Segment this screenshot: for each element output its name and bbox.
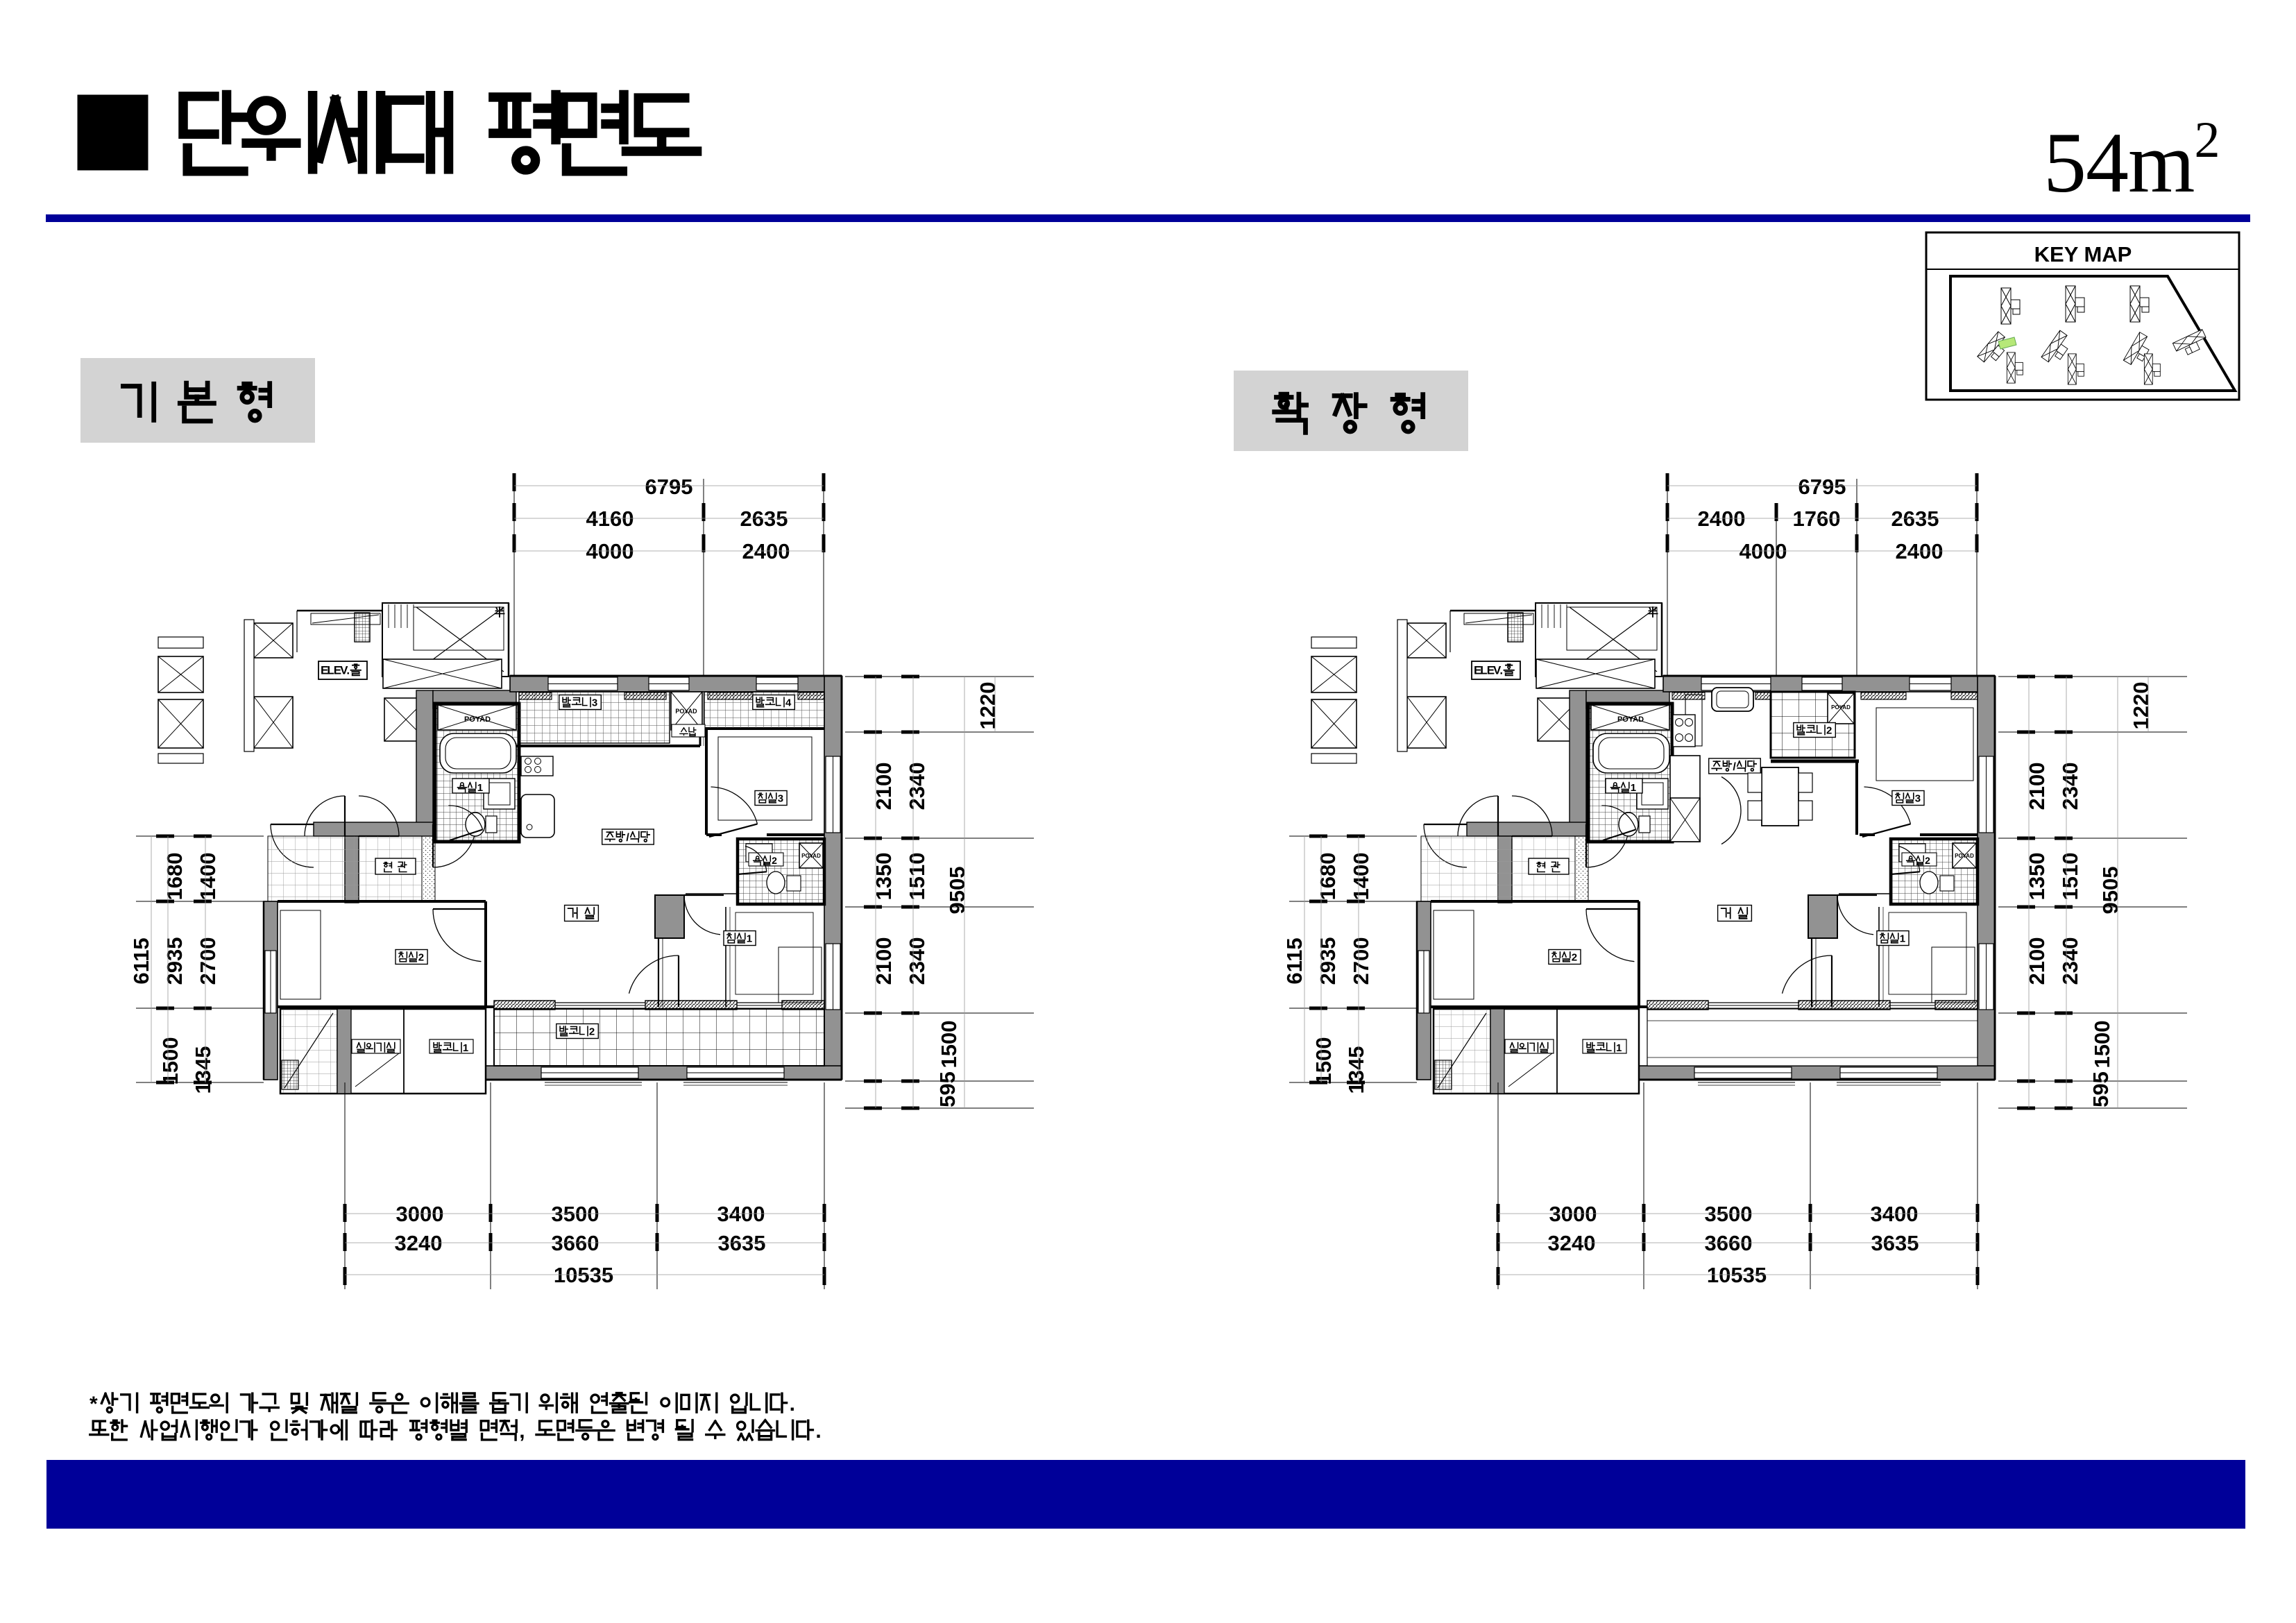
svg-text:4: 4 <box>785 697 792 708</box>
svg-text:2700: 2700 <box>196 937 220 985</box>
svg-text:*: * <box>90 1393 98 1416</box>
svg-text:1220: 1220 <box>2129 682 2153 730</box>
svg-text:3660: 3660 <box>1705 1231 1753 1255</box>
svg-text:10535: 10535 <box>1707 1263 1767 1287</box>
svg-text:2: 2 <box>1572 951 1577 963</box>
svg-text:2635: 2635 <box>740 507 788 531</box>
svg-text:1: 1 <box>1631 782 1636 794</box>
svg-text:/: / <box>626 832 629 844</box>
svg-text:2: 2 <box>772 855 777 866</box>
svg-text:3660: 3660 <box>552 1231 599 1255</box>
svg-text:6795: 6795 <box>645 475 693 499</box>
svg-text:3: 3 <box>1915 792 1921 804</box>
svg-text:1760: 1760 <box>1793 507 1841 531</box>
svg-text:.: . <box>815 1420 821 1443</box>
svg-text:2100: 2100 <box>2025 937 2049 985</box>
svg-text:2935: 2935 <box>162 937 187 985</box>
svg-text:2100: 2100 <box>2025 763 2049 810</box>
svg-text:POYAD: POYAD <box>1831 704 1851 711</box>
svg-text:2: 2 <box>1925 855 1930 866</box>
svg-text:半: 半 <box>1647 606 1658 619</box>
svg-text:2: 2 <box>1826 724 1832 736</box>
svg-text:POYAD: POYAD <box>675 708 697 715</box>
svg-text:2340: 2340 <box>905 937 929 985</box>
svg-text:3635: 3635 <box>718 1231 766 1255</box>
svg-text:4000: 4000 <box>1740 539 1787 563</box>
svg-text:3400: 3400 <box>1871 1202 1919 1226</box>
svg-text:4000: 4000 <box>586 539 634 563</box>
svg-text:1500: 1500 <box>2090 1021 2114 1069</box>
svg-text:1680: 1680 <box>162 853 187 901</box>
svg-text:2100: 2100 <box>871 937 896 985</box>
svg-text:3500: 3500 <box>552 1202 599 1226</box>
svg-text:1400: 1400 <box>196 853 220 901</box>
svg-text:KEY MAP: KEY MAP <box>2034 242 2132 266</box>
svg-text:6115: 6115 <box>1282 937 1307 984</box>
svg-text:10535: 10535 <box>554 1263 613 1287</box>
svg-text:2340: 2340 <box>2058 937 2082 985</box>
svg-text:3635: 3635 <box>1871 1231 1919 1255</box>
svg-text:1510: 1510 <box>905 853 929 901</box>
svg-text:6795: 6795 <box>1798 475 1846 499</box>
svg-text:1500: 1500 <box>1311 1037 1336 1085</box>
svg-text:6115: 6115 <box>129 937 153 984</box>
svg-text:595: 595 <box>2089 1071 2113 1107</box>
svg-text:2: 2 <box>418 951 424 963</box>
svg-text:2340: 2340 <box>905 763 929 810</box>
svg-text:2340: 2340 <box>2058 763 2082 810</box>
svg-text:1: 1 <box>1900 933 1905 944</box>
svg-text:3000: 3000 <box>1549 1202 1597 1226</box>
svg-text:POYAD: POYAD <box>1955 853 1974 859</box>
svg-text:2400: 2400 <box>1698 507 1746 531</box>
svg-text:1400: 1400 <box>1349 853 1373 901</box>
svg-text:POYAD: POYAD <box>464 715 491 724</box>
svg-text:/: / <box>1733 761 1736 773</box>
svg-text:1500: 1500 <box>158 1037 182 1085</box>
svg-text:9505: 9505 <box>945 867 969 915</box>
svg-text:3: 3 <box>778 792 783 804</box>
svg-text:2635: 2635 <box>1891 507 1939 531</box>
svg-text:.: . <box>346 664 350 677</box>
svg-text:1: 1 <box>747 933 752 944</box>
svg-text:4160: 4160 <box>586 507 634 531</box>
svg-text:POYAD: POYAD <box>1617 715 1644 724</box>
svg-text:2: 2 <box>589 1026 595 1037</box>
svg-text:,: , <box>519 1420 525 1443</box>
svg-text:3400: 3400 <box>717 1202 765 1226</box>
svg-text:POYAD: POYAD <box>801 853 821 859</box>
svg-text:.: . <box>1499 664 1503 677</box>
svg-text:半: 半 <box>494 606 505 619</box>
svg-text:1: 1 <box>463 1042 468 1054</box>
svg-text:3240: 3240 <box>1548 1231 1596 1255</box>
svg-text:1345: 1345 <box>1344 1046 1368 1094</box>
svg-text:1350: 1350 <box>871 853 896 901</box>
svg-text:.: . <box>790 1393 795 1416</box>
svg-text:1680: 1680 <box>1316 853 1340 901</box>
svg-text:3: 3 <box>592 697 597 708</box>
svg-text:2100: 2100 <box>871 763 896 810</box>
svg-text:2400: 2400 <box>742 539 790 563</box>
svg-text:2700: 2700 <box>1349 937 1373 985</box>
svg-text:1: 1 <box>1616 1042 1622 1054</box>
svg-text:3000: 3000 <box>396 1202 444 1226</box>
svg-text:2400: 2400 <box>1896 539 1944 563</box>
svg-text:2935: 2935 <box>1316 937 1340 985</box>
svg-text:1345: 1345 <box>191 1046 215 1094</box>
svg-text:9505: 9505 <box>2098 867 2123 915</box>
svg-text:1510: 1510 <box>2058 853 2082 901</box>
svg-text:1350: 1350 <box>2025 853 2049 901</box>
svg-text:1: 1 <box>477 782 483 794</box>
svg-text:54m2: 54m2 <box>2043 112 2219 210</box>
svg-text:1500: 1500 <box>937 1021 961 1069</box>
svg-text:1220: 1220 <box>976 682 1000 730</box>
svg-text:3240: 3240 <box>395 1231 443 1255</box>
svg-text:595: 595 <box>935 1071 960 1107</box>
svg-text:3500: 3500 <box>1705 1202 1753 1226</box>
